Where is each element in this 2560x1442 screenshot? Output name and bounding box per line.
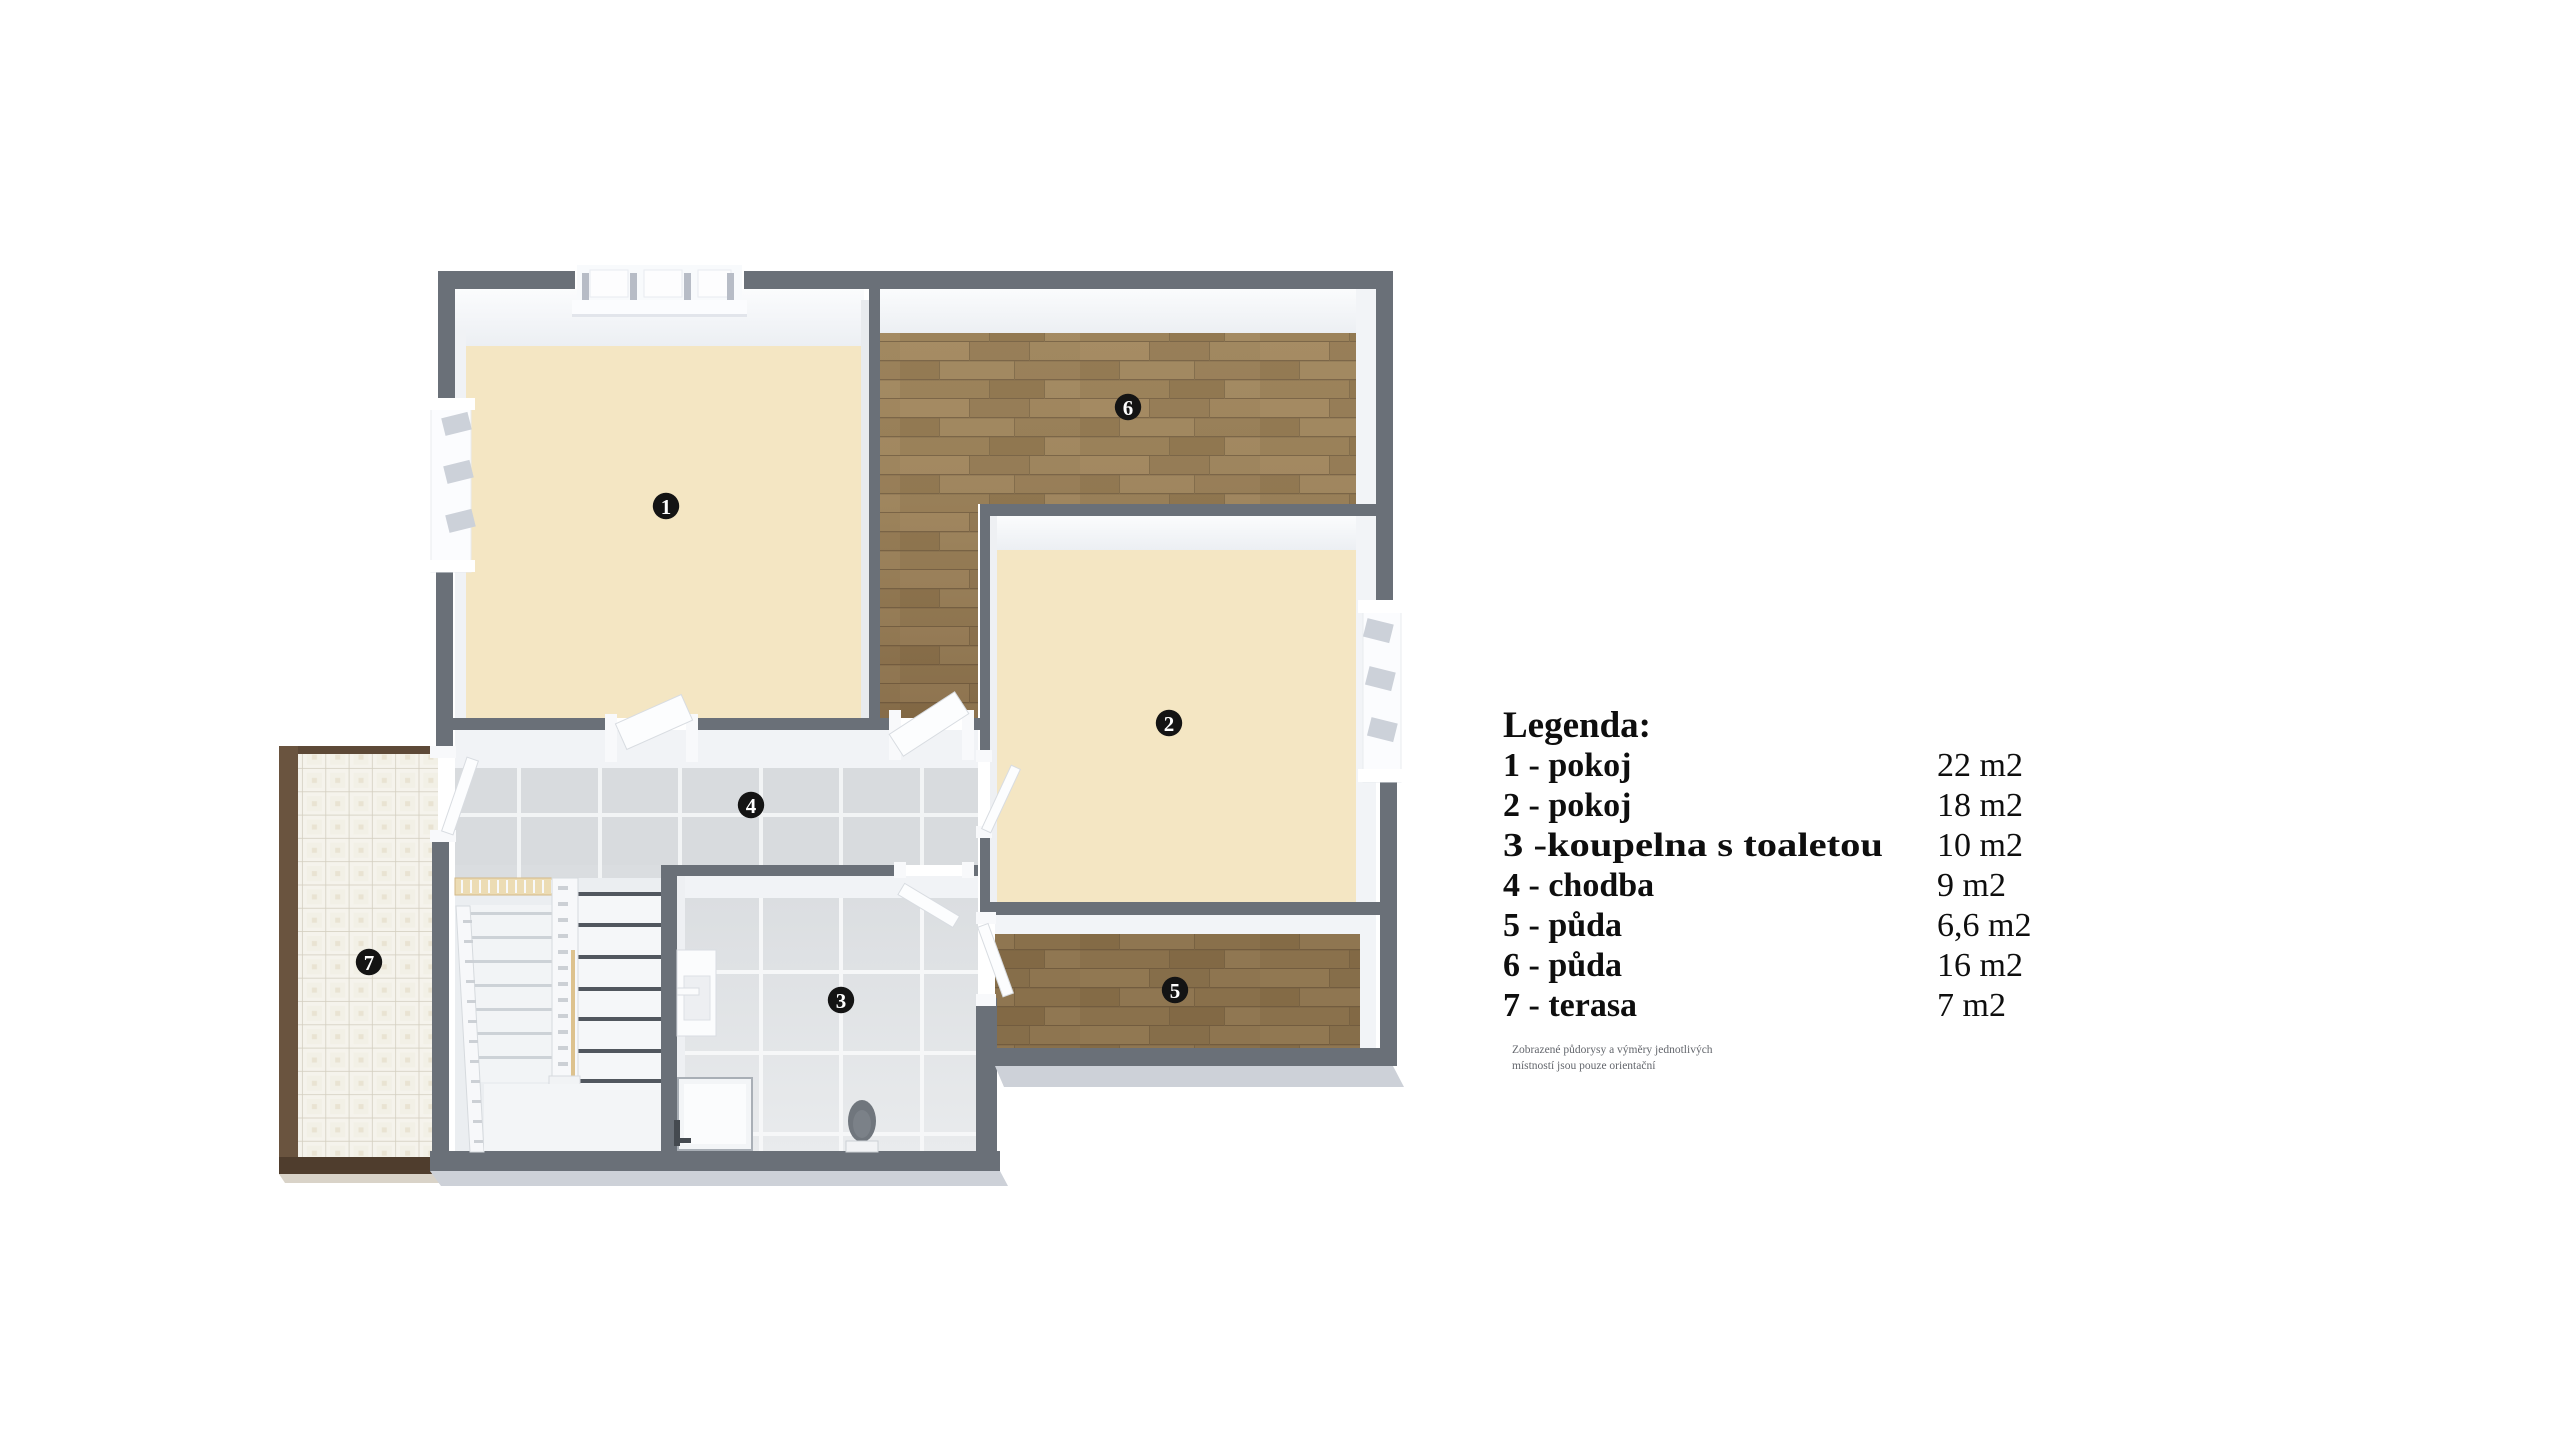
svg-text:2: 2 — [1164, 712, 1175, 736]
svg-text:3 -koupelna s toaletou: 3 -koupelna s toaletou — [1503, 827, 1883, 864]
svg-text:7: 7 — [364, 951, 375, 975]
svg-text:6: 6 — [1123, 396, 1134, 420]
svg-text:6,6 m2: 6,6 m2 — [1937, 907, 2031, 944]
svg-text:5 - půda: 5 - půda — [1503, 907, 1622, 944]
svg-text:16 m2: 16 m2 — [1937, 947, 2023, 984]
svg-text:18 m2: 18 m2 — [1937, 787, 2023, 824]
svg-text:6 - půda: 6 - půda — [1503, 947, 1622, 984]
svg-text:4: 4 — [746, 794, 757, 818]
svg-text:9 m2: 9 m2 — [1937, 867, 2006, 904]
svg-text:2 - pokoj: 2 - pokoj — [1503, 787, 1631, 824]
svg-text:22 m2: 22 m2 — [1937, 747, 2023, 784]
svg-text:10 m2: 10 m2 — [1937, 827, 2023, 864]
svg-text:3: 3 — [836, 989, 847, 1013]
svg-text:Legenda:: Legenda: — [1503, 705, 1651, 746]
svg-text:Zobrazené půdorysy a výměry je: Zobrazené půdorysy a výměry jednotlivých — [1512, 1043, 1713, 1056]
svg-text:4 - chodba: 4 - chodba — [1503, 867, 1654, 904]
svg-text:7 - terasa: 7 - terasa — [1503, 987, 1637, 1024]
svg-text:5: 5 — [1170, 979, 1181, 1003]
svg-text:místností jsou pouze orientačn: místností jsou pouze orientační — [1512, 1060, 1656, 1072]
svg-text:1: 1 — [661, 495, 672, 519]
svg-text:7 m2: 7 m2 — [1937, 987, 2006, 1024]
svg-text:1 - pokoj: 1 - pokoj — [1503, 747, 1631, 784]
